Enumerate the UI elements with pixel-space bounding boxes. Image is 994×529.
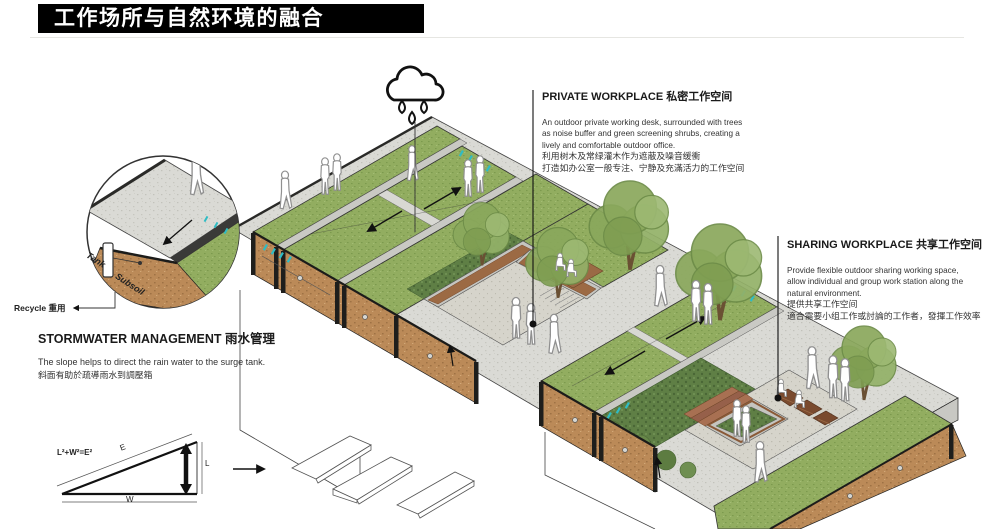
sharing-leader-dot (775, 395, 782, 402)
sharing-body: Provide flexible outdoor sharing working… (787, 265, 982, 322)
slide: 工作场所与自然环境的融合 PRIVATE WORKPLACE 私密工作空间 An… (0, 0, 994, 529)
bush (656, 450, 676, 470)
slope-diagram (57, 434, 264, 502)
sharing-workplace-callout: SHARING WORKPLACE 共享工作空间 Provide flexibl… (787, 236, 982, 322)
stormwater-callout: STORMWATER MANAGEMENT 雨水管理 The slope hel… (38, 328, 275, 381)
title-divider (30, 37, 964, 38)
slope-formula: L²+W²=E² (57, 448, 92, 457)
stormwater-title: STORMWATER MANAGEMENT 雨水管理 (38, 328, 275, 347)
private-leader-dot (530, 321, 537, 328)
detail-circle (74, 153, 262, 312)
recycle-label: Recycle 重用 (14, 302, 66, 314)
recycle-leader-line (74, 292, 115, 308)
bush (680, 462, 696, 478)
private-body: An outdoor private working desk, surroun… (542, 117, 744, 174)
private-workplace-callout: PRIVATE WORKPLACE 私密工作空间 An outdoor priv… (542, 88, 744, 174)
sharing-title: SHARING WORKPLACE 共享工作空间 (787, 236, 982, 252)
slope-label-w: W (126, 495, 134, 504)
wedge-blocks (292, 436, 474, 518)
slope-label-l: L (205, 459, 209, 468)
stormwater-body: The slope helps to direct the rain water… (38, 356, 275, 381)
private-title: PRIVATE WORKPLACE 私密工作空间 (542, 88, 744, 104)
rain-cloud-icon (387, 67, 443, 124)
page-title: 工作场所与自然环境的融合 (38, 4, 424, 33)
